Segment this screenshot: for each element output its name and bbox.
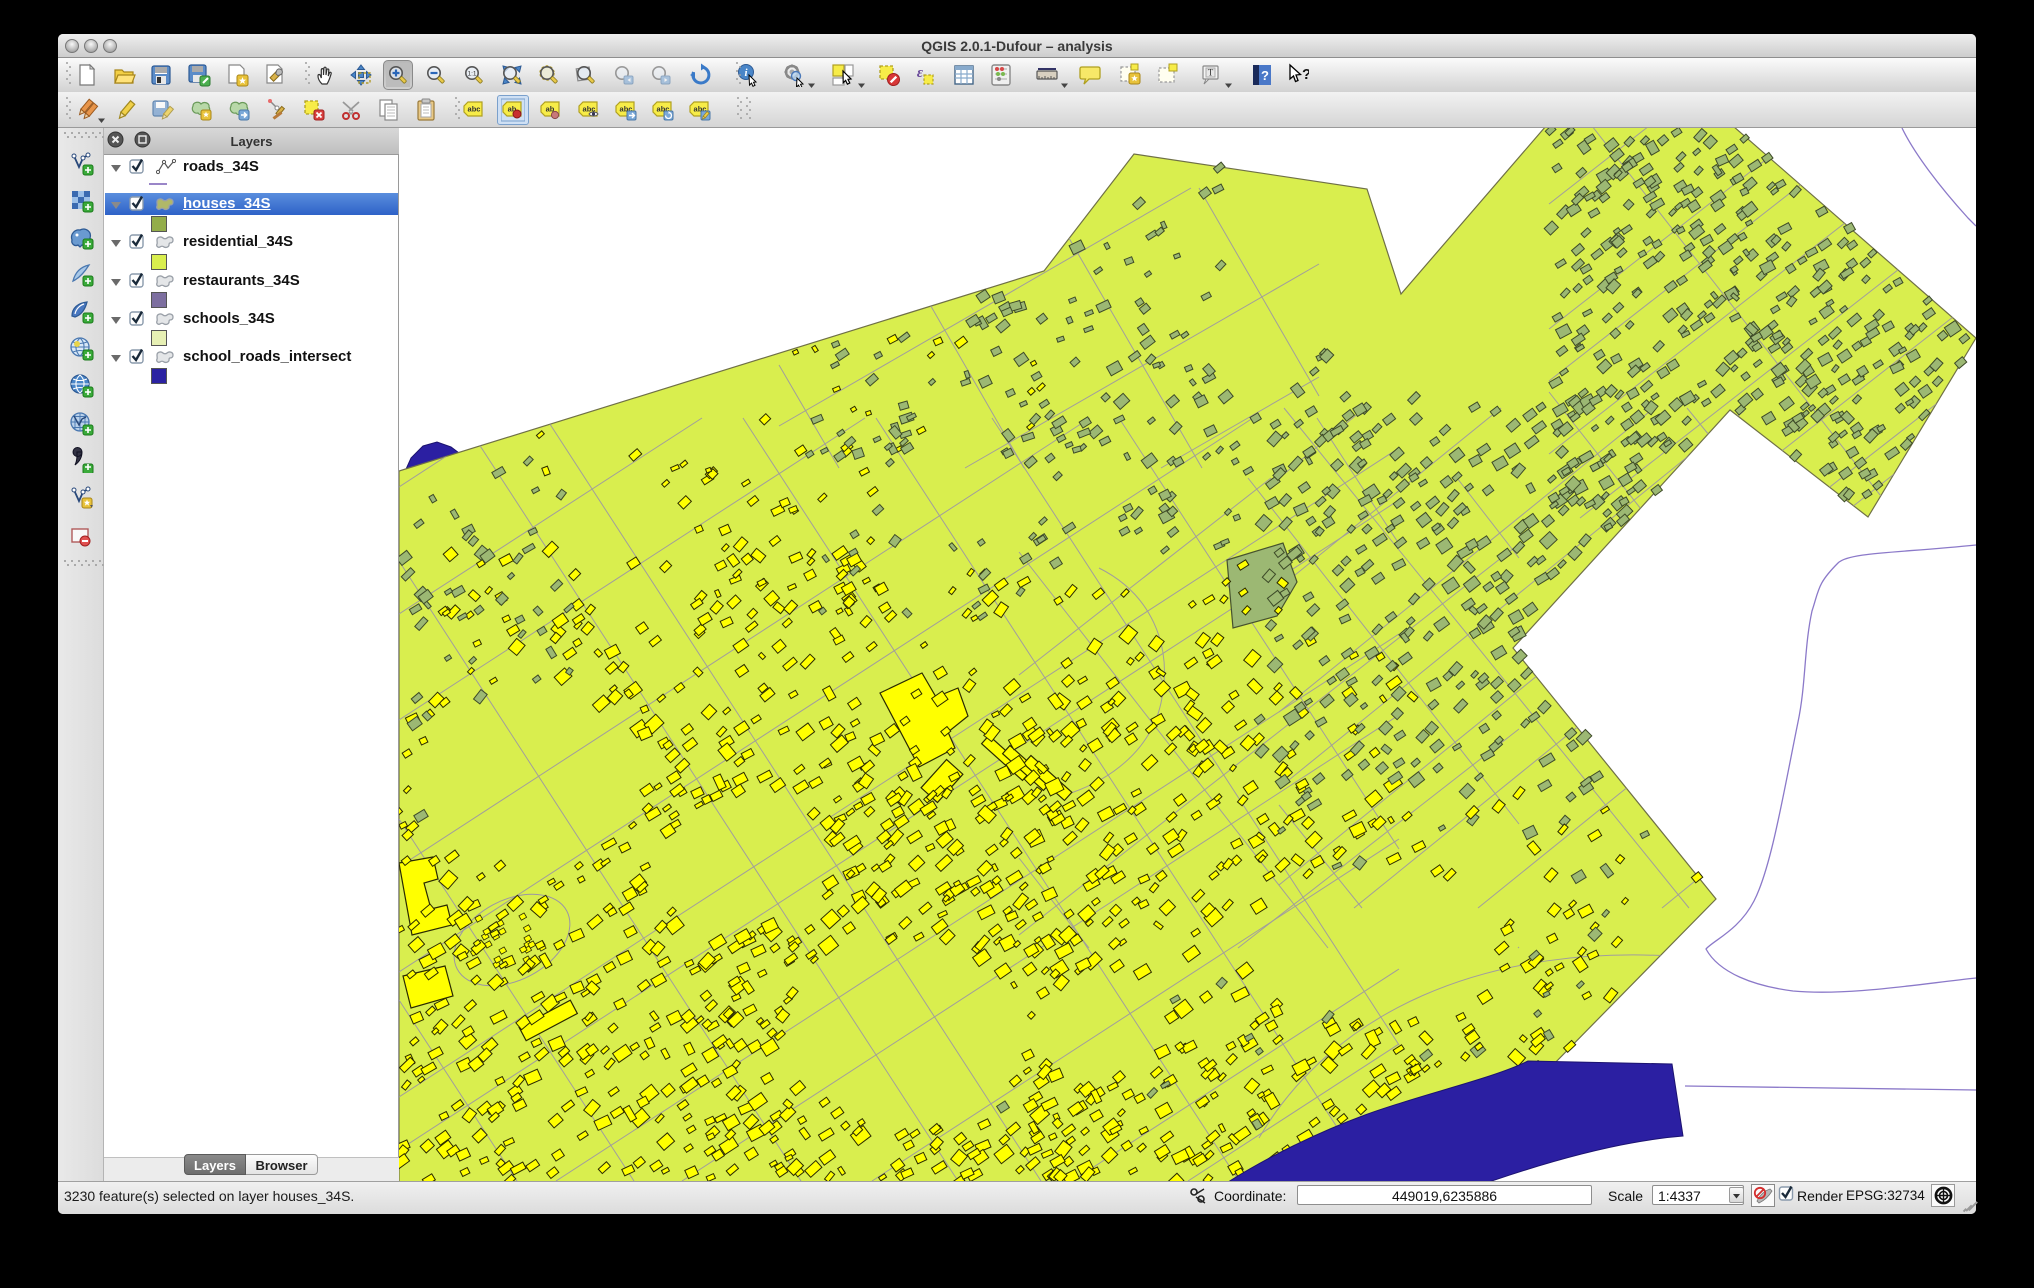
svg-text:?: ?	[1302, 66, 1309, 83]
svg-text:T: T	[1208, 68, 1214, 78]
svg-text:abc: abc	[468, 105, 481, 114]
svg-text:ε: ε	[917, 65, 924, 81]
svg-text:1:1: 1:1	[467, 71, 476, 78]
svg-text:?: ?	[1261, 68, 1269, 83]
